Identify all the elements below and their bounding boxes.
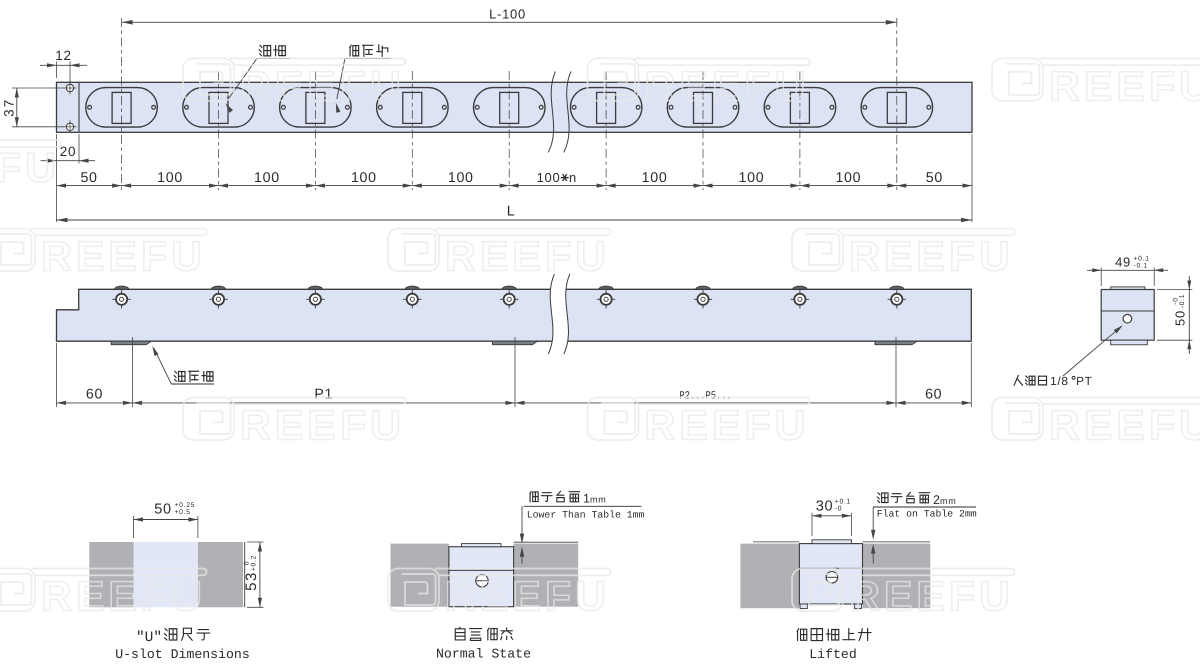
- svg-text:50: 50: [926, 170, 943, 186]
- svg-text:U-slot Dimensions: U-slot Dimensions: [115, 647, 250, 662]
- svg-text:100: 100: [254, 170, 280, 186]
- svg-text:100: 100: [642, 170, 668, 186]
- svg-text:"U": "U": [136, 630, 162, 646]
- svg-text:100: 100: [351, 170, 377, 186]
- svg-text:100: 100: [537, 170, 561, 185]
- svg-text:P1: P1: [314, 386, 333, 402]
- svg-text:+0.5: +0.5: [175, 509, 191, 516]
- svg-text:60: 60: [86, 386, 103, 402]
- svg-text:n: n: [569, 170, 577, 185]
- svg-text:37: 37: [2, 98, 17, 117]
- svg-text:100: 100: [835, 170, 861, 186]
- svg-text:60: 60: [925, 386, 942, 402]
- svg-text:100: 100: [448, 170, 474, 186]
- svg-text:1/8: 1/8: [1050, 374, 1069, 388]
- svg-text:+0.25: +0.25: [175, 502, 196, 509]
- svg-text:Normal State: Normal State: [436, 646, 531, 661]
- svg-text:50: 50: [154, 502, 172, 518]
- svg-text:+0.1: +0.1: [835, 499, 851, 506]
- svg-text:mm: mm: [940, 496, 956, 506]
- svg-text:49: 49: [1115, 254, 1131, 269]
- svg-text:Lower Than Table 1mm: Lower Than Table 1mm: [527, 509, 645, 520]
- svg-text:50: 50: [80, 170, 97, 186]
- svg-text:mm: mm: [590, 495, 606, 505]
- svg-text:-0: -0: [835, 506, 842, 513]
- svg-text:-0.1: -0.1: [1179, 294, 1186, 309]
- svg-text:PT: PT: [1076, 374, 1092, 388]
- svg-text:50: 50: [1173, 310, 1188, 326]
- svg-text:20: 20: [60, 144, 76, 159]
- svg-text:L-100: L-100: [489, 7, 526, 22]
- svg-text:100: 100: [739, 170, 765, 186]
- svg-text:+0.2: +0.2: [250, 555, 257, 571]
- svg-text:L: L: [507, 204, 516, 220]
- svg-text:Flat on Table 2mm: Flat on Table 2mm: [877, 508, 977, 519]
- svg-text:53: 53: [243, 571, 260, 591]
- svg-text:Lifted: Lifted: [809, 647, 856, 662]
- svg-text:-0.1: -0.1: [1134, 262, 1149, 269]
- svg-text:30: 30: [816, 499, 834, 515]
- svg-text:100: 100: [157, 170, 183, 186]
- svg-text:12: 12: [55, 48, 71, 63]
